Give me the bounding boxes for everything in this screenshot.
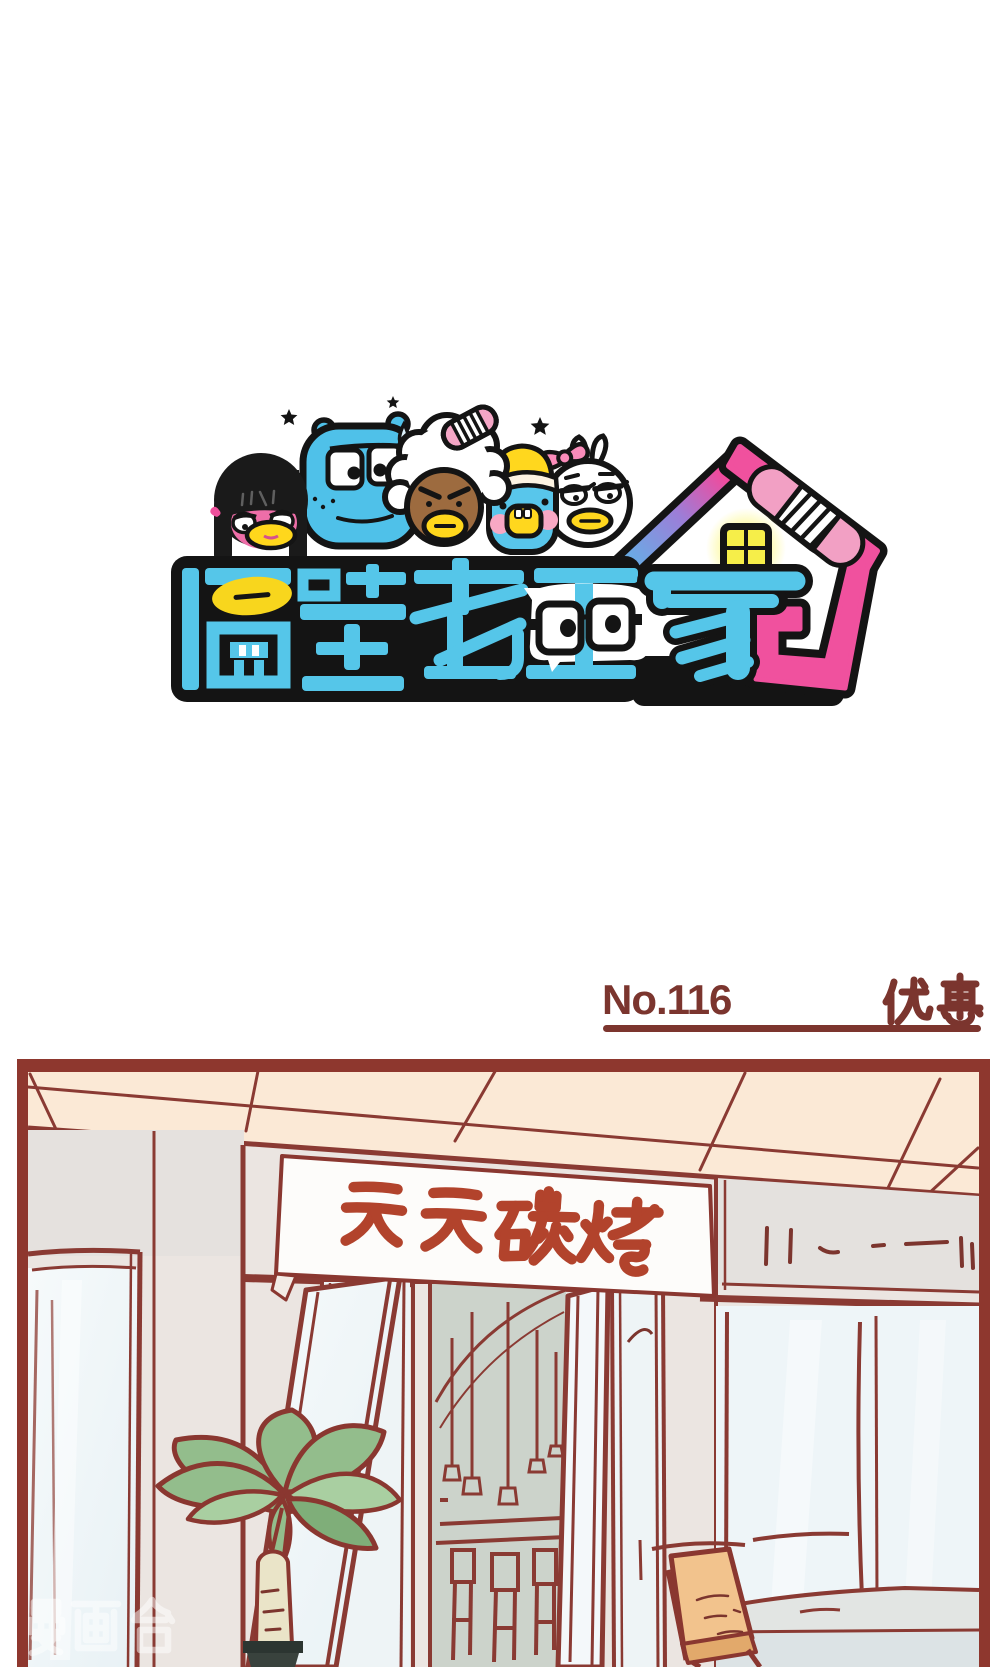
svg-text:No.116: No.116 bbox=[602, 976, 731, 1023]
